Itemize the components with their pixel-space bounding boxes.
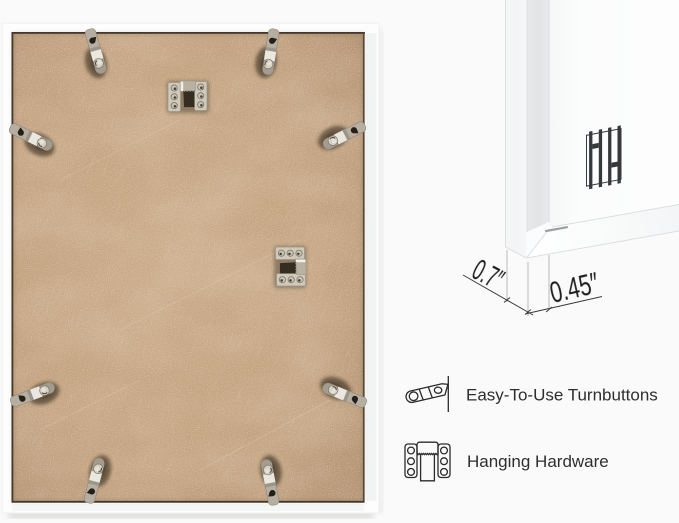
svg-text:Hanging Hardware: Hanging Hardware bbox=[467, 452, 609, 471]
svg-text:Easy-To-Use Turnbuttons: Easy-To-Use Turnbuttons bbox=[466, 386, 658, 405]
